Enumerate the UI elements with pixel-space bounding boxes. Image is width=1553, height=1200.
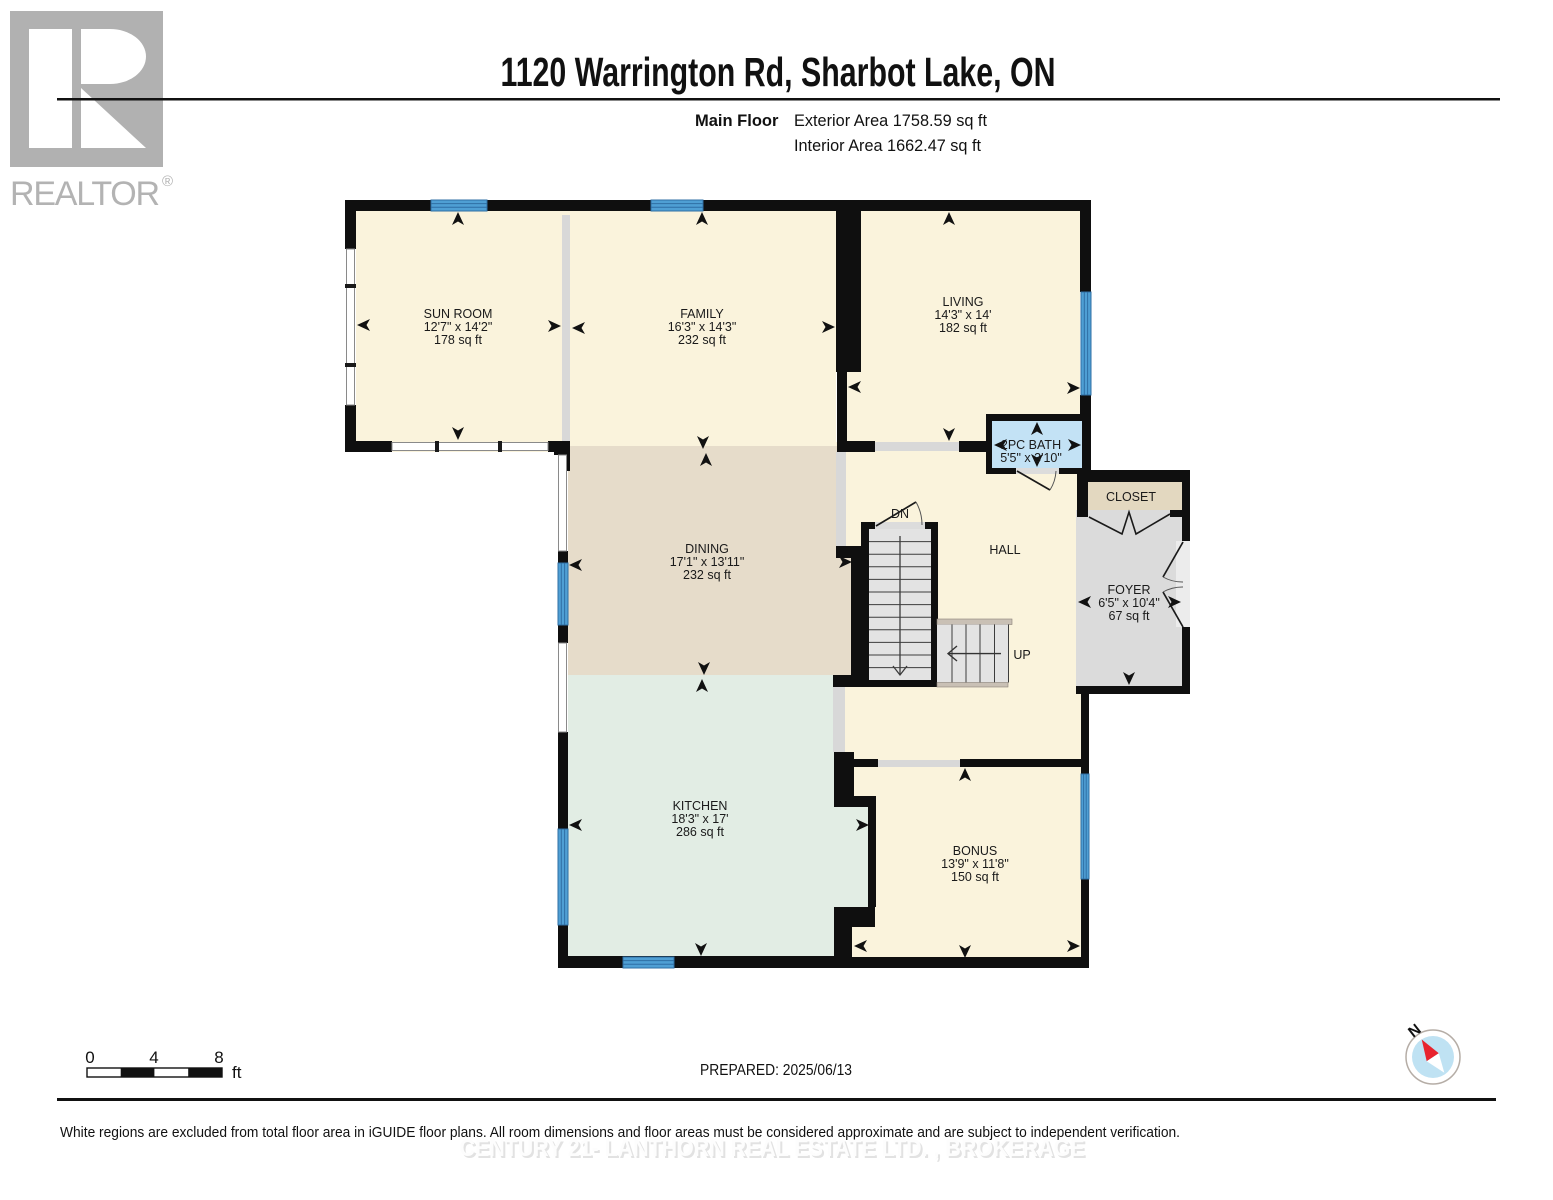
svg-text:18'3" x 17': 18'3" x 17' (671, 812, 728, 826)
svg-text:1120 Warrington Rd, Sharbot La: 1120 Warrington Rd, Sharbot Lake, ON (501, 49, 1056, 95)
svg-text:232 sq ft: 232 sq ft (678, 333, 726, 347)
svg-text:286 sq ft: 286 sq ft (676, 825, 724, 839)
svg-text:REALTOR: REALTOR (10, 175, 160, 213)
svg-text:Exterior Area 1758.59 sq ft: Exterior Area 1758.59 sq ft (794, 112, 987, 130)
svg-text:182 sq ft: 182 sq ft (939, 321, 987, 335)
svg-text:ft: ft (232, 1063, 242, 1082)
svg-text:5'5" x 3'10": 5'5" x 3'10" (1000, 451, 1062, 465)
svg-text:HALL: HALL (989, 543, 1020, 557)
svg-text:CENTURY 21- LANTHORN REAL ESTA: CENTURY 21- LANTHORN REAL ESTATE LTD. , … (460, 1135, 1085, 1162)
svg-text:DN: DN (891, 507, 909, 521)
svg-text:Main Floor: Main Floor (695, 112, 779, 130)
svg-text:13'9" x 11'8": 13'9" x 11'8" (941, 857, 1009, 871)
svg-text:14'3" x 14': 14'3" x 14' (934, 308, 991, 322)
svg-text:0: 0 (85, 1048, 94, 1067)
svg-text:150 sq ft: 150 sq ft (951, 870, 999, 884)
svg-text:67 sq ft: 67 sq ft (1109, 609, 1151, 623)
svg-text:FOYER: FOYER (1107, 583, 1150, 597)
svg-text:UP: UP (1013, 648, 1030, 662)
svg-text:16'3" x 14'3": 16'3" x 14'3" (668, 320, 737, 334)
svg-text:Interior Area 1662.47 sq ft: Interior Area 1662.47 sq ft (794, 137, 981, 155)
svg-text:4: 4 (149, 1048, 158, 1067)
svg-text:PREPARED: 2025/06/13: PREPARED: 2025/06/13 (700, 1062, 852, 1079)
svg-text:12'7" x 14'2": 12'7" x 14'2" (424, 320, 493, 334)
svg-text:LIVING: LIVING (943, 295, 984, 309)
svg-text:2PC BATH: 2PC BATH (1001, 438, 1061, 452)
svg-text:®: ® (162, 173, 173, 190)
svg-text:SUN ROOM: SUN ROOM (424, 307, 493, 321)
svg-text:FAMILY: FAMILY (680, 307, 724, 321)
svg-text:KITCHEN: KITCHEN (673, 799, 728, 813)
svg-text:178 sq ft: 178 sq ft (434, 333, 482, 347)
svg-text:CLOSET: CLOSET (1106, 490, 1156, 504)
svg-text:DINING: DINING (685, 542, 729, 556)
svg-text:17'1" x 13'11": 17'1" x 13'11" (670, 555, 745, 569)
svg-text:BONUS: BONUS (953, 844, 997, 858)
svg-text:8: 8 (214, 1048, 223, 1067)
svg-text:6'5" x 10'4": 6'5" x 10'4" (1098, 596, 1160, 610)
svg-text:232 sq ft: 232 sq ft (683, 568, 731, 582)
